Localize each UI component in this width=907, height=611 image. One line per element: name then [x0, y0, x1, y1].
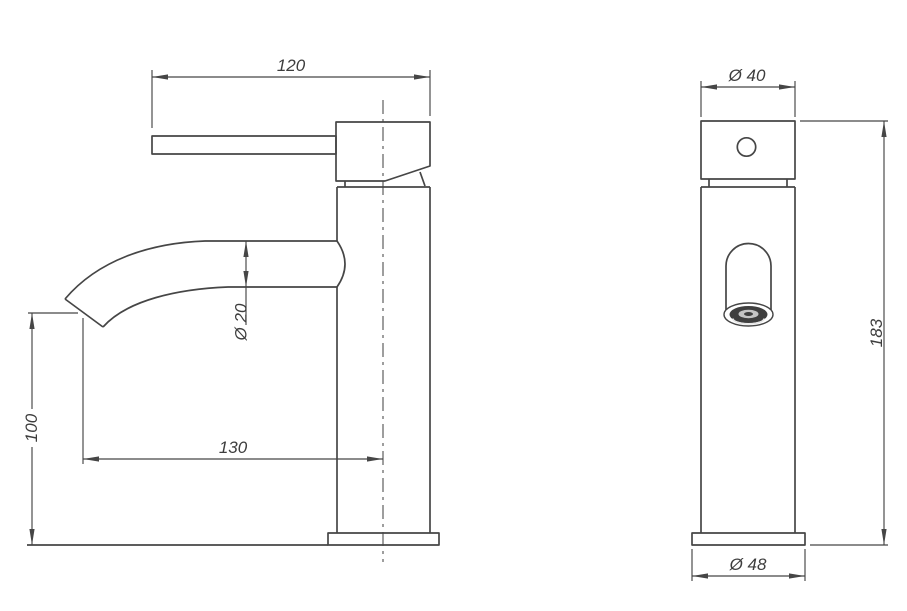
head-front — [701, 121, 795, 179]
dim-handle-length: 120 — [152, 56, 430, 128]
handle-lever — [152, 136, 336, 154]
side-view: 120 Ø 20 100 130 — [22, 56, 439, 562]
dim-base-diameter: Ø 48 — [692, 549, 805, 581]
dim-body-diameter: Ø 40 — [701, 66, 795, 117]
front-view: Ø 40 183 Ø 48 — [692, 66, 888, 581]
head-ring-right-edge — [420, 172, 425, 186]
dim-total-height: 183 — [800, 121, 888, 545]
dim-label-183: 183 — [867, 318, 886, 347]
dim-label-o20: Ø 20 — [232, 303, 251, 341]
dim-label-120: 120 — [277, 56, 306, 75]
faucet-front-outline — [692, 121, 805, 545]
handle-pin-hole — [737, 138, 755, 156]
technical-drawing: 120 Ø 20 100 130 — [0, 0, 907, 611]
spout-outlet-recess — [726, 244, 771, 311]
spout-outer-curve — [65, 241, 337, 299]
dim-label-100: 100 — [22, 413, 41, 442]
dim-label-130: 130 — [219, 438, 248, 457]
spout-body-intersection — [337, 241, 345, 287]
dim-label-o40: Ø 40 — [728, 66, 766, 85]
drawing-canvas: 120 Ø 20 100 130 — [0, 0, 907, 611]
base-flange-front — [692, 533, 805, 545]
dim-spout-diameter: Ø 20 — [232, 241, 251, 341]
dim-outlet-height: 100 — [22, 313, 78, 545]
dim-label-o48: Ø 48 — [729, 555, 767, 574]
spout-inner-curve — [103, 287, 337, 327]
aerator-center — [744, 312, 753, 316]
